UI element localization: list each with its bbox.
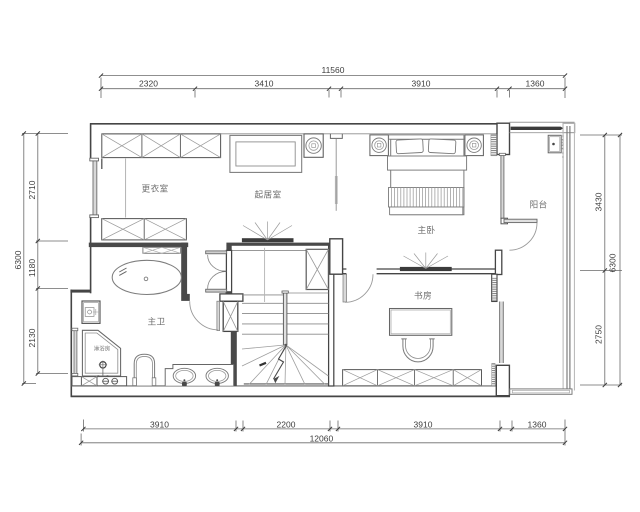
- svg-text:起居室: 起居室: [255, 189, 282, 200]
- svg-text:3410: 3410: [255, 78, 274, 88]
- svg-text:1360: 1360: [526, 78, 545, 88]
- svg-text:更衣室: 更衣室: [142, 183, 169, 194]
- svg-text:主卧: 主卧: [418, 224, 436, 235]
- svg-text:1180: 1180: [27, 259, 37, 278]
- svg-text:阳台: 阳台: [530, 199, 548, 210]
- svg-text:2710: 2710: [27, 180, 37, 199]
- svg-text:2750: 2750: [594, 325, 604, 344]
- svg-text:6300: 6300: [608, 253, 618, 272]
- svg-text:6300: 6300: [13, 250, 23, 269]
- svg-text:3910: 3910: [414, 419, 433, 429]
- svg-text:11560: 11560: [321, 65, 344, 75]
- svg-text:3910: 3910: [412, 78, 431, 88]
- svg-text:淋浴房: 淋浴房: [94, 345, 111, 353]
- svg-text:1360: 1360: [528, 419, 547, 429]
- svg-text:书房: 书房: [414, 290, 432, 301]
- svg-text:2200: 2200: [277, 419, 296, 429]
- svg-text:12060: 12060: [310, 433, 334, 443]
- svg-text:3430: 3430: [594, 192, 604, 211]
- svg-text:主卫: 主卫: [148, 316, 166, 327]
- svg-text:2130: 2130: [27, 328, 37, 347]
- svg-text:2320: 2320: [139, 78, 158, 88]
- svg-text:3910: 3910: [150, 419, 169, 429]
